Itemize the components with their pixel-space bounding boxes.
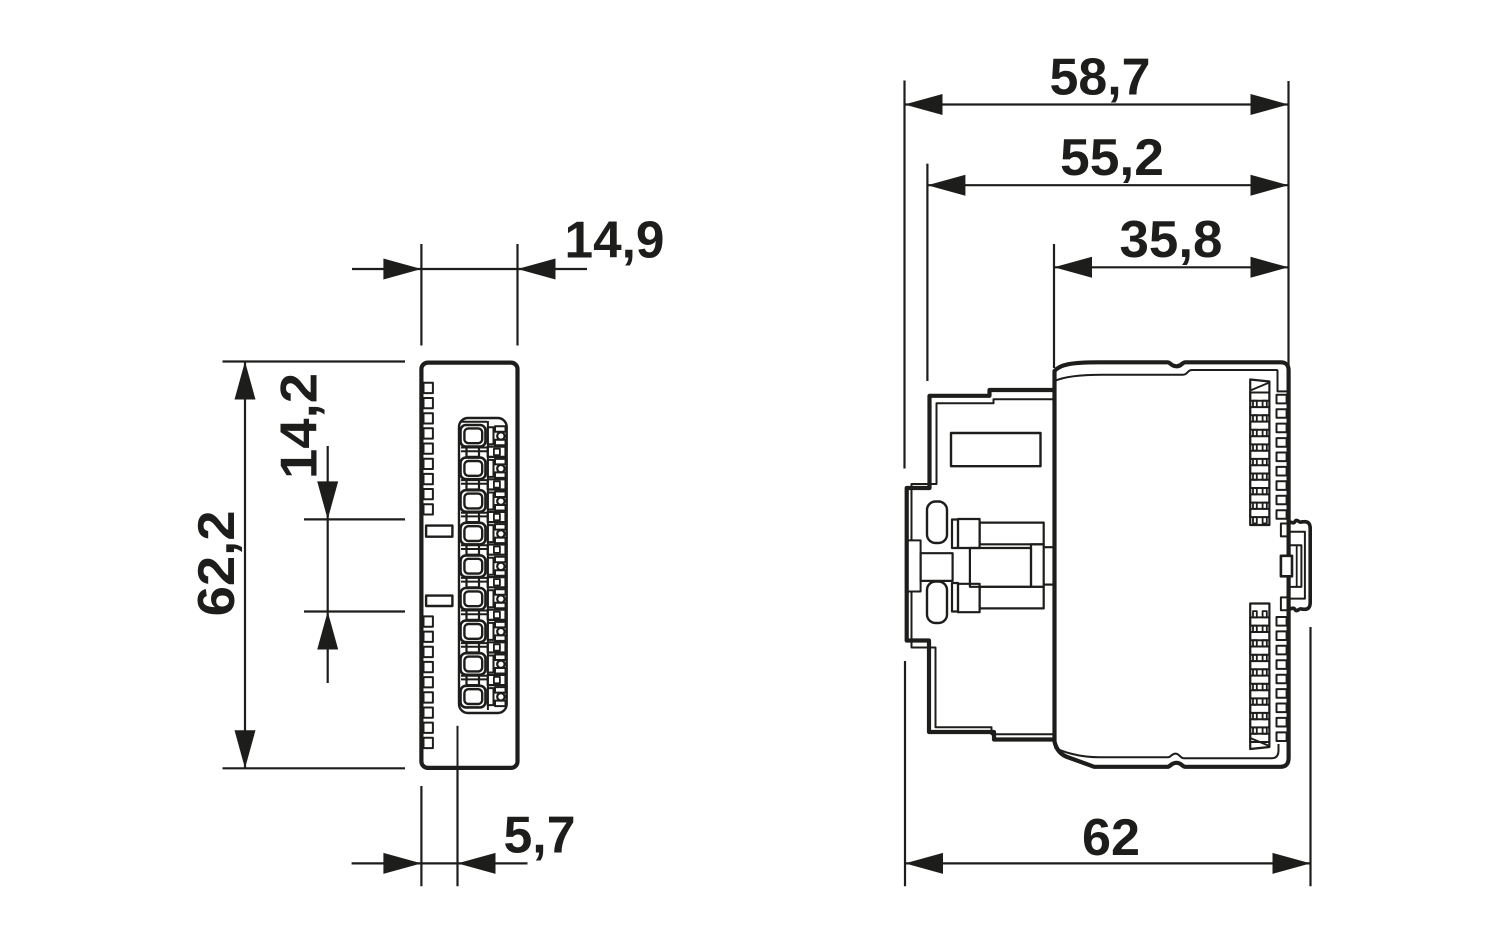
svg-text:14,2: 14,2 <box>271 373 329 479</box>
svg-text:14,9: 14,9 <box>565 212 665 270</box>
svg-text:35,8: 35,8 <box>1120 211 1223 269</box>
svg-text:62,2: 62,2 <box>188 510 246 616</box>
svg-text:55,2: 55,2 <box>1060 129 1164 187</box>
svg-text:58,7: 58,7 <box>1050 49 1151 107</box>
svg-text:62: 62 <box>1082 809 1140 867</box>
svg-text:5,7: 5,7 <box>504 807 576 865</box>
